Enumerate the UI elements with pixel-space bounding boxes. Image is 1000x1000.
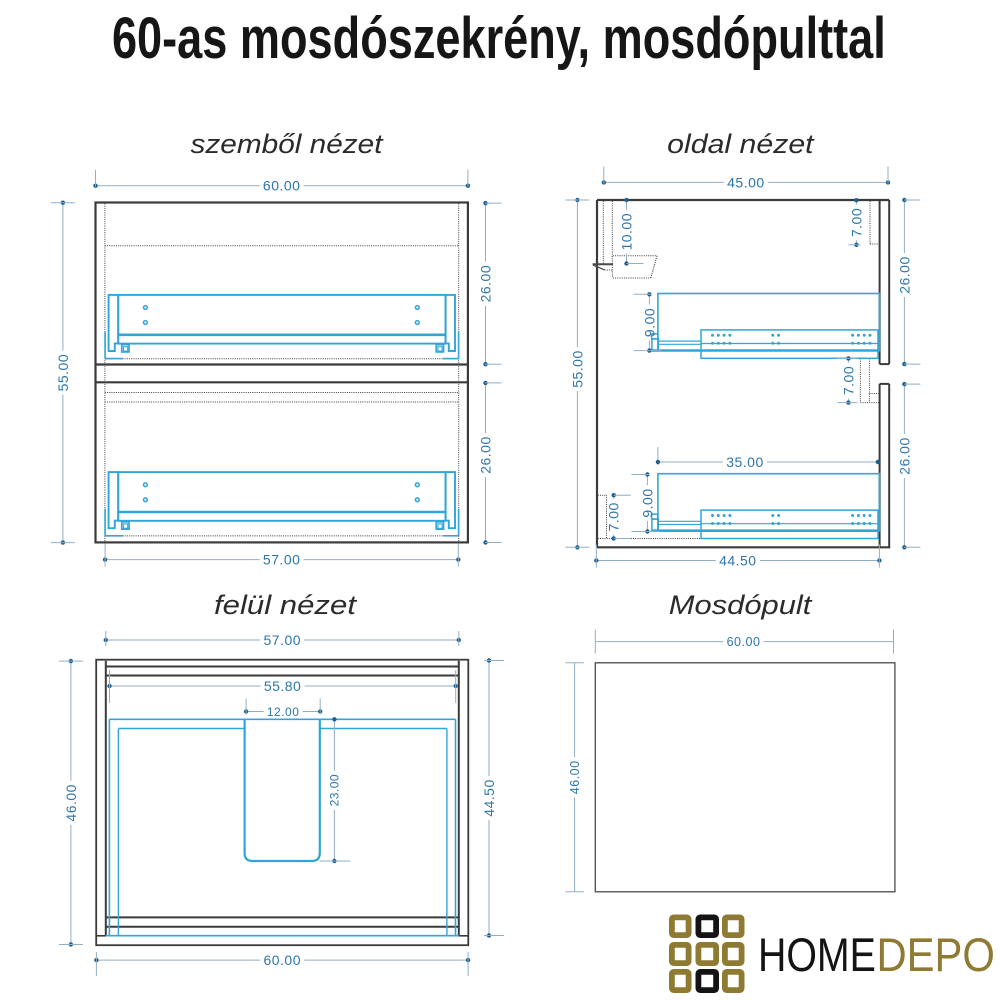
svg-text:felül nézet: felül nézet	[214, 590, 358, 620]
svg-text:55.00: 55.00	[569, 350, 585, 388]
svg-text:55.00: 55.00	[55, 354, 71, 392]
svg-text:9.00: 9.00	[641, 308, 657, 337]
svg-text:szemből nézet: szemből nézet	[191, 129, 385, 159]
svg-text:DEPO: DEPO	[876, 930, 994, 982]
svg-text:44.50: 44.50	[719, 553, 757, 569]
svg-text:60.00: 60.00	[263, 952, 301, 968]
svg-text:26.00: 26.00	[478, 265, 494, 303]
svg-text:26.00: 26.00	[896, 437, 912, 475]
svg-text:57.00: 57.00	[264, 632, 302, 648]
svg-text:10.00: 10.00	[619, 213, 635, 251]
svg-text:44.50: 44.50	[481, 779, 497, 817]
svg-text:9.00: 9.00	[639, 488, 655, 517]
svg-text:46.00: 46.00	[568, 760, 582, 794]
svg-text:60-as mosdószekrény, mosdópult: 60-as mosdószekrény, mosdópulttal	[112, 7, 886, 72]
svg-text:35.00: 35.00	[726, 454, 764, 470]
svg-text:12.00: 12.00	[267, 705, 300, 719]
svg-text:oldal nézet: oldal nézet	[667, 129, 815, 159]
svg-text:45.00: 45.00	[727, 174, 765, 190]
svg-text:55.80: 55.80	[264, 678, 302, 694]
svg-text:60.00: 60.00	[263, 178, 301, 194]
svg-text:26.00: 26.00	[896, 256, 912, 294]
svg-text:Mosdópult: Mosdópult	[669, 590, 813, 620]
svg-text:HOME: HOME	[758, 930, 876, 982]
svg-text:46.00: 46.00	[63, 784, 79, 822]
svg-text:57.00: 57.00	[263, 552, 301, 568]
svg-text:7.00: 7.00	[606, 502, 622, 531]
svg-text:26.00: 26.00	[478, 436, 494, 474]
svg-text:7.00: 7.00	[848, 208, 864, 237]
svg-text:7.00: 7.00	[840, 366, 856, 395]
svg-text:23.00: 23.00	[328, 774, 342, 807]
svg-text:60.00: 60.00	[727, 635, 761, 649]
